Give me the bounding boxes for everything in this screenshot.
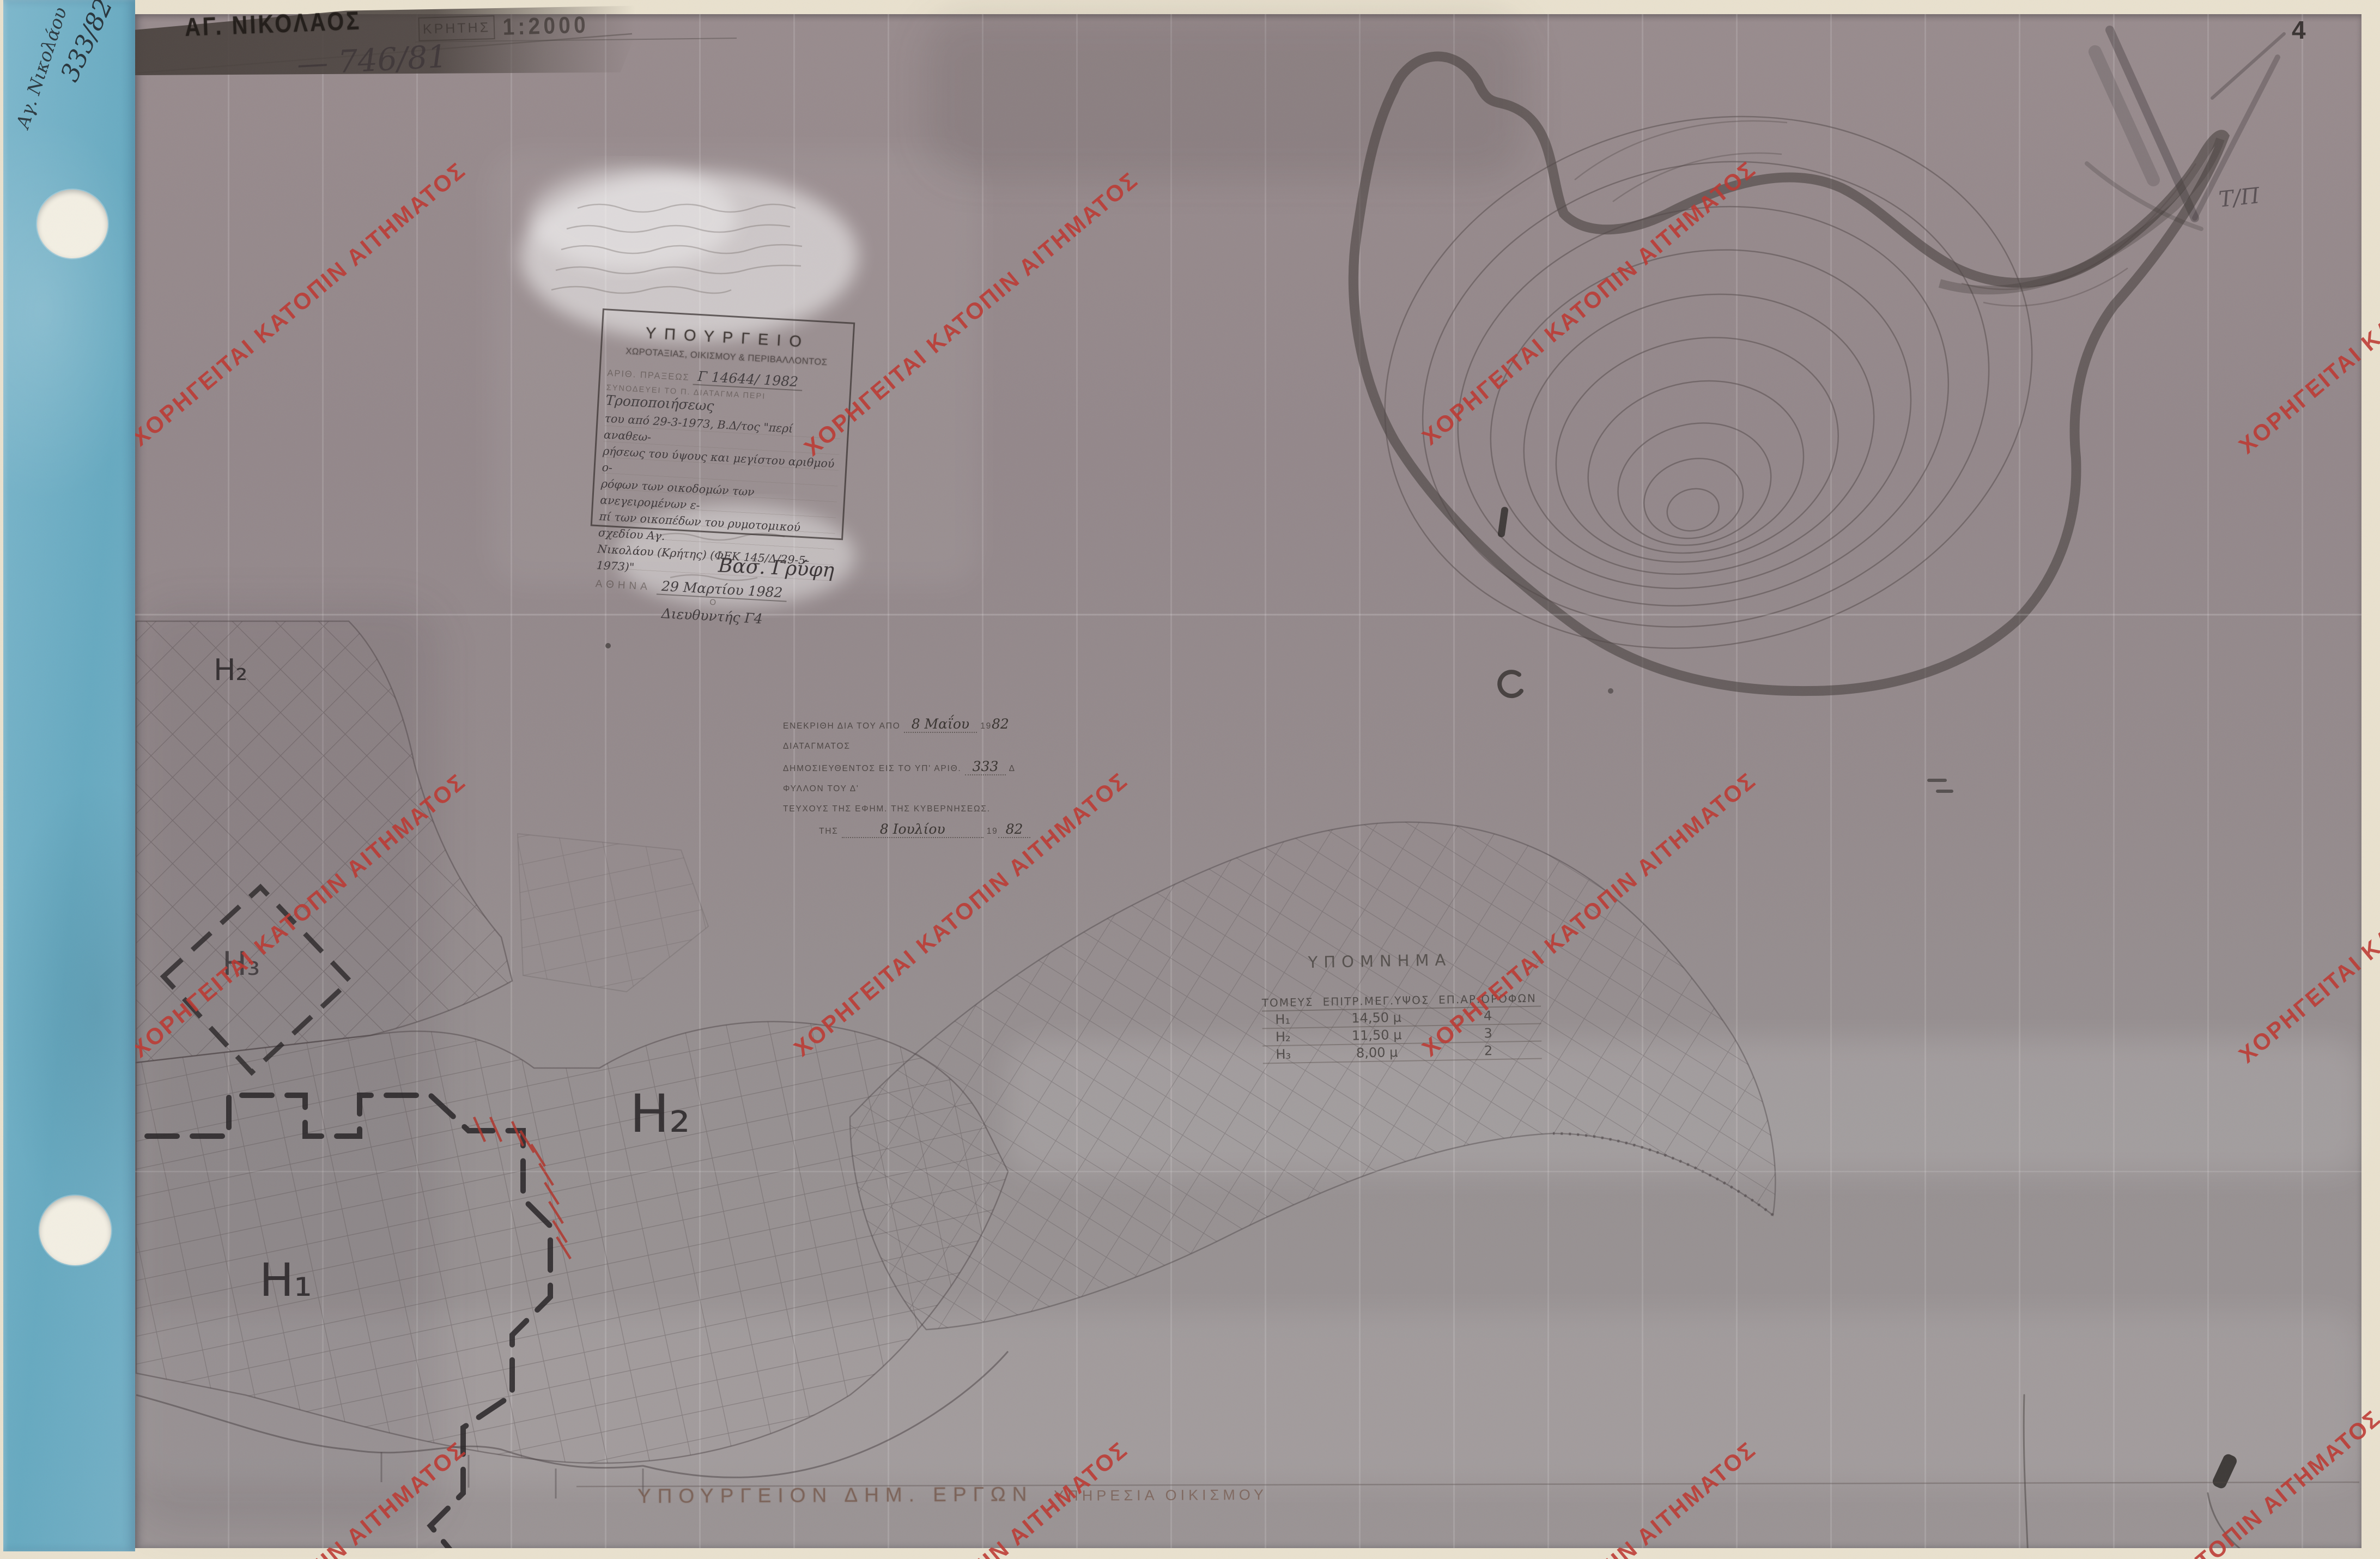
scale-label: 1:2000 <box>502 12 590 41</box>
scanned-map-document: ΑΓ. ΝΙΚΟΛΑΟΣ ΚΡΗΤΗΣ 1:2000 — 746/81 4 Τ/… <box>0 0 2380 1559</box>
approval-line-4: ΤΗΣ 8 Ιουλίου 1982 <box>819 819 1050 841</box>
punch-hole-bottom <box>39 1196 111 1265</box>
ministry-stamp: ΥΠΟΥΡΓΕΙΟ ΧΩΡΟΤΑΞΙΑΣ, ΟΙΚΙΣΜΟΥ & ΠΕΡΙΒΑΛ… <box>591 308 855 540</box>
legend-height: 14,50 μ <box>1318 1008 1435 1028</box>
legend-header: ΤΟΜΕΥΣ <box>1262 994 1319 1011</box>
approval-line-1: ΕΝΕΚΡΙΘΗ ΔΙΑ ΤΟΥ ΑΠΟ 8 Μαΐου 1982 ΔΙΑΤΑΓ… <box>783 714 1050 756</box>
punch-hole-top <box>37 190 108 258</box>
sector-label-h2-small: Η₂ <box>214 653 247 687</box>
approval-year-handwritten: 82 <box>992 716 1009 732</box>
map-drawing <box>0 0 2380 1559</box>
approval-line-3: ΤΕΥΧΟΥΣ ΤΗΣ ΕΦΗΜ. ΤΗΣ ΚΥΒΕΡΝΗΣΕΩΣ. <box>783 799 1050 819</box>
approval-year2-handwritten: 82 <box>998 821 1031 838</box>
legend-sector: Η₃ <box>1262 1045 1319 1064</box>
sector-label-h2-large: Η₂ <box>630 1083 690 1144</box>
approval-text: ΔΙΑΤΑΓΜΑΤΟΣ <box>783 742 851 751</box>
approval-text: ΤΗΣ <box>819 827 839 836</box>
corner-mark-handwritten: Τ/Π <box>2218 183 2261 213</box>
approval-text: 19 <box>987 827 998 836</box>
region-label: ΚΡΗΤΗΣ <box>423 20 491 37</box>
act-number-handwritten: Γ 14644/ 1982 <box>693 368 803 391</box>
act-number-label: ΑΡΙΘ. ΠΡΑΞΕΩΣ <box>607 368 690 383</box>
region-box: ΚΡΗΤΗΣ <box>418 15 495 41</box>
approval-text: ΔΗΜΟΣΙΕΥΘΕΝΤΟΣ ΕΙΣ ΤΟ ΥΠ' ΑΡΙΘ. <box>783 764 962 773</box>
legend-sector: Η₁ <box>1262 1010 1319 1029</box>
legend-header: ΕΠΙΤΡ.ΜΕΓ.ΥΨΟΣ <box>1318 992 1435 1010</box>
legend-height: 8,00 μ <box>1319 1043 1435 1063</box>
approval-date2-handwritten: 8 Ιουλίου <box>842 821 983 838</box>
approval-stamp: ΕΝΕΚΡΙΘΗ ΔΙΑ ΤΟΥ ΑΠΟ 8 Μαΐου 1982 ΔΙΑΤΑΓ… <box>783 714 1050 841</box>
approval-gazette-number-handwritten: 333 <box>965 759 1006 775</box>
approval-line-2: ΔΗΜΟΣΙΕΥΘΕΝΤΟΣ ΕΙΣ ΤΟ ΥΠ' ΑΡΙΘ. 333 Δ ΦΥ… <box>783 756 1050 799</box>
approval-text: 19 <box>980 721 992 731</box>
sheet-number: 4 <box>2292 15 2306 45</box>
place-label: ΑΘΗΝΑ <box>595 578 651 593</box>
approval-text: ΕΝΕΚΡΙΘΗ ΔΙΑ ΤΟΥ ΑΠΟ <box>783 721 901 731</box>
binding-strip <box>3 0 135 1551</box>
approval-date-handwritten: 8 Μαΐου <box>904 716 977 733</box>
legend-sector: Η₂ <box>1262 1028 1319 1046</box>
footer-agency: ΥΠΟΥΡΓΕΙΟΝ ΔΗΜ. ΕΡΓΩΝ <box>637 1483 1034 1507</box>
sector-label-h1: Η₁ <box>259 1253 312 1307</box>
footer-agency-line: ΥΠΟΥΡΓΕΙΟΝ ΔΗΜ. ΕΡΓΩΝΥΠΗΡΕΣΙΑ ΟΙΚΙΣΜΟΥ <box>637 1482 1267 1508</box>
